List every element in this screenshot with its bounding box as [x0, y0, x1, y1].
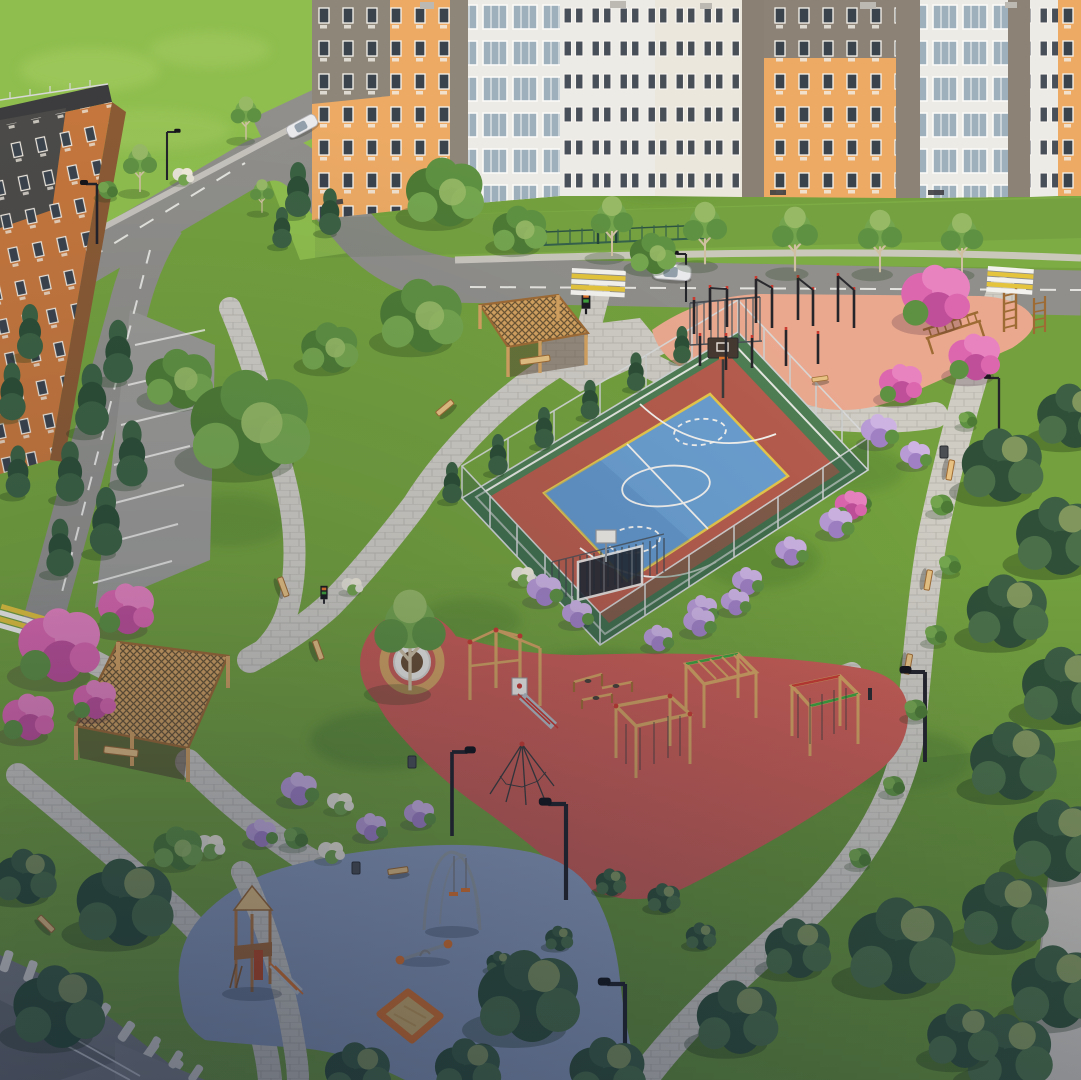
- corner-shade: [0, 0, 1081, 1080]
- courtyard-render: [0, 0, 1081, 1080]
- render-canvas: [0, 0, 1081, 1080]
